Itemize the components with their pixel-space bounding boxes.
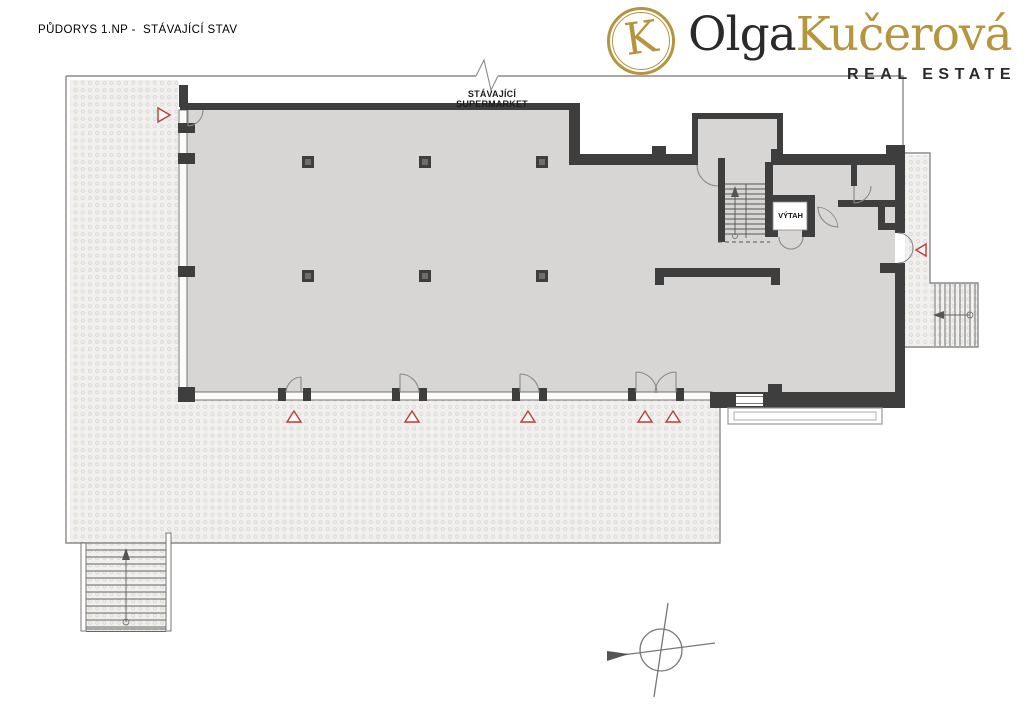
benchmark-symbol [607,603,715,697]
brand-name: OlgaKučerová [688,9,1012,61]
brand-name-last: Kučerová [796,7,1012,62]
elevator-label: VÝTAH [770,211,811,220]
supermarket-floor [186,110,895,393]
se-window-opening [736,394,763,406]
floor-plan-page: PŮDORYS 1.NP - STÁVAJÍCÍ STAV STÁVAJÍCÍ … [0,0,1024,724]
se-pavement [728,408,882,424]
supermarket-area-label: STÁVAJÍCÍ SUPERMARKET [431,89,553,109]
page-title: PŮDORYS 1.NP - STÁVAJÍCÍ STAV [38,24,237,36]
brand-logo: K OlgaKučerová REAL ESTATE [600,0,1024,96]
logo-monogram-icon: K [607,7,675,75]
logo-monogram-letter: K [621,15,660,63]
brand-name-first: Olga [688,7,796,62]
brand-tagline: REAL ESTATE [847,66,1016,84]
